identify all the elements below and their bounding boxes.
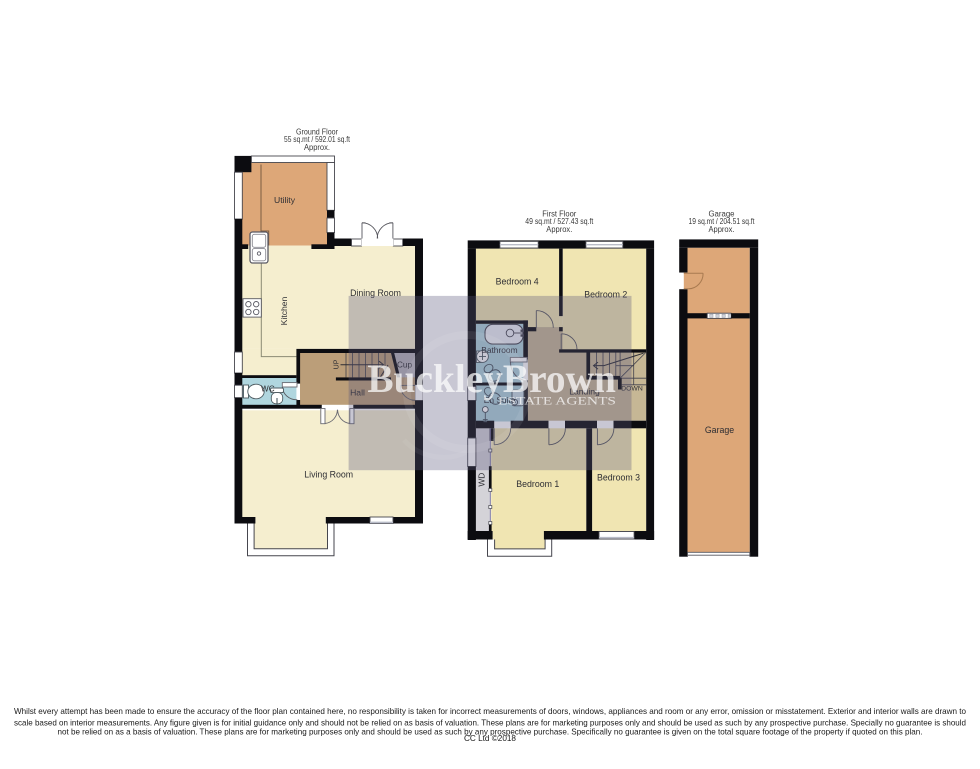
svg-text:CC Ltd ©2018: CC Ltd ©2018 [464, 734, 516, 743]
svg-text:Approx.: Approx. [709, 225, 735, 234]
svg-text:Utility: Utility [274, 195, 296, 205]
svg-text:UP: UP [334, 359, 341, 369]
svg-text:Living Room: Living Room [304, 469, 353, 479]
svg-text:Whilst every attempt has been: Whilst every attempt has been made to en… [14, 707, 966, 716]
svg-text:WC: WC [261, 384, 275, 393]
svg-text:Kitchen: Kitchen [279, 296, 289, 325]
svg-text:ESTATE AGENTS: ESTATE AGENTS [498, 395, 616, 407]
svg-text:Garage: Garage [705, 425, 734, 435]
svg-text:WD: WD [476, 473, 486, 487]
svg-text:Approx.: Approx. [304, 143, 330, 152]
svg-text:Bedroom 1: Bedroom 1 [516, 479, 559, 489]
svg-text:scale based on interior measur: scale based on interior measurements. An… [14, 718, 966, 727]
svg-text:Approx.: Approx. [546, 225, 572, 234]
svg-text:Bedroom 4: Bedroom 4 [496, 277, 539, 287]
svg-text:BuckleyBrown: BuckleyBrown [367, 356, 616, 401]
svg-text:Bedroom 3: Bedroom 3 [597, 472, 640, 482]
